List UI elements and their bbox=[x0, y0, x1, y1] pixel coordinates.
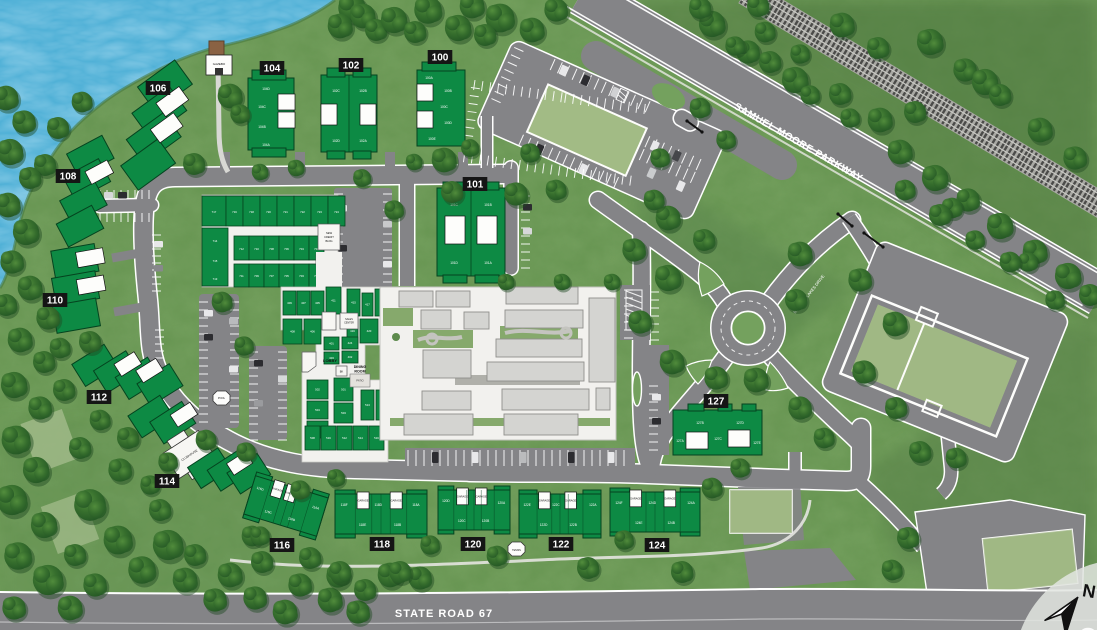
svg-text:723: 723 bbox=[317, 210, 322, 214]
svg-text:514: 514 bbox=[358, 436, 363, 440]
svg-text:124: 124 bbox=[649, 541, 666, 552]
svg-text:513: 513 bbox=[365, 403, 370, 407]
svg-text:127C: 127C bbox=[714, 437, 722, 441]
svg-text:DINING: DINING bbox=[354, 365, 367, 369]
svg-text:501: 501 bbox=[341, 388, 346, 392]
svg-text:714: 714 bbox=[213, 239, 218, 243]
svg-text:100: 100 bbox=[432, 53, 449, 64]
svg-text:411: 411 bbox=[331, 299, 336, 303]
svg-text:GARAGE: GARAGE bbox=[391, 499, 402, 503]
svg-text:118A: 118A bbox=[412, 503, 420, 507]
svg-text:BLDG: BLDG bbox=[325, 239, 332, 243]
svg-text:101B: 101B bbox=[484, 203, 491, 207]
svg-text:503: 503 bbox=[341, 411, 346, 415]
svg-text:TENNIS: TENNIS bbox=[512, 549, 521, 552]
svg-text:420: 420 bbox=[367, 329, 372, 333]
svg-text:104D: 104D bbox=[262, 87, 270, 91]
svg-text:122B: 122B bbox=[569, 523, 576, 527]
svg-text:GAZEBO: GAZEBO bbox=[213, 62, 226, 66]
svg-text:424: 424 bbox=[348, 341, 353, 345]
svg-text:100B: 100B bbox=[444, 89, 451, 93]
svg-text:721: 721 bbox=[283, 210, 288, 214]
svg-text:722: 722 bbox=[300, 210, 305, 214]
svg-text:127E: 127E bbox=[753, 441, 760, 445]
svg-text:127: 127 bbox=[708, 397, 725, 408]
svg-text:104: 104 bbox=[264, 64, 281, 75]
svg-text:127A: 127A bbox=[676, 439, 684, 443]
svg-text:120D: 120D bbox=[442, 499, 450, 503]
svg-text:118E: 118E bbox=[359, 523, 366, 527]
svg-text:516: 516 bbox=[374, 436, 379, 440]
svg-text:122A: 122A bbox=[589, 503, 597, 507]
svg-text:401: 401 bbox=[329, 342, 334, 346]
svg-text:POOL: POOL bbox=[218, 396, 226, 400]
svg-text:124E: 124E bbox=[635, 521, 642, 525]
svg-text:GARAGE: GARAGE bbox=[664, 497, 675, 501]
svg-text:124F: 124F bbox=[615, 501, 622, 505]
svg-text:GARAGE: GARAGE bbox=[630, 497, 641, 501]
svg-text:508: 508 bbox=[310, 436, 315, 440]
svg-text:122D: 122D bbox=[540, 523, 548, 527]
svg-text:LOBBY: LOBBY bbox=[323, 358, 337, 363]
svg-text:705: 705 bbox=[284, 274, 289, 278]
svg-text:122C: 122C bbox=[552, 503, 560, 507]
svg-text:GARAGE: GARAGE bbox=[539, 499, 550, 503]
svg-text:724: 724 bbox=[334, 210, 339, 214]
svg-text:GARAGE: GARAGE bbox=[358, 499, 369, 503]
svg-text:BK: BK bbox=[340, 370, 344, 374]
svg-text:406: 406 bbox=[310, 330, 315, 334]
svg-text:408: 408 bbox=[290, 330, 295, 334]
svg-text:118: 118 bbox=[374, 540, 391, 551]
svg-text:GARAGE: GARAGE bbox=[565, 499, 576, 503]
svg-text:100E: 100E bbox=[428, 137, 435, 141]
svg-text:512: 512 bbox=[342, 436, 347, 440]
svg-text:STATE ROAD 67: STATE ROAD 67 bbox=[395, 608, 493, 620]
svg-text:709: 709 bbox=[254, 274, 259, 278]
svg-text:127D: 127D bbox=[736, 421, 744, 425]
svg-text:502: 502 bbox=[315, 388, 320, 392]
svg-text:102A: 102A bbox=[359, 139, 367, 143]
svg-text:116: 116 bbox=[274, 541, 291, 552]
svg-text:415: 415 bbox=[351, 301, 356, 305]
svg-text:706: 706 bbox=[284, 247, 289, 251]
svg-text:504: 504 bbox=[315, 408, 320, 412]
svg-text:718: 718 bbox=[249, 210, 254, 214]
svg-text:409: 409 bbox=[287, 301, 292, 305]
svg-text:CREDIT: CREDIT bbox=[324, 235, 334, 239]
svg-text:712: 712 bbox=[239, 247, 244, 251]
svg-text:122E: 122E bbox=[523, 503, 530, 507]
svg-text:100C: 100C bbox=[440, 105, 448, 109]
svg-text:106: 106 bbox=[150, 84, 167, 95]
svg-text:711: 711 bbox=[239, 274, 244, 278]
svg-text:102D: 102D bbox=[332, 139, 340, 143]
svg-text:101A: 101A bbox=[484, 261, 492, 265]
svg-text:102: 102 bbox=[343, 61, 360, 72]
svg-text:114: 114 bbox=[159, 477, 176, 488]
svg-text:720: 720 bbox=[266, 210, 271, 214]
svg-text:101D: 101D bbox=[450, 261, 458, 265]
svg-text:124D: 124D bbox=[648, 501, 656, 505]
svg-text:ROOM: ROOM bbox=[354, 370, 365, 374]
svg-text:124B: 124B bbox=[667, 521, 674, 525]
svg-text:100D: 100D bbox=[444, 121, 452, 125]
svg-text:102C: 102C bbox=[332, 89, 340, 93]
svg-text:405: 405 bbox=[315, 301, 320, 305]
svg-text:101: 101 bbox=[467, 180, 484, 191]
svg-text:703: 703 bbox=[299, 274, 304, 278]
svg-text:704: 704 bbox=[299, 247, 304, 251]
svg-text:124A: 124A bbox=[687, 501, 695, 505]
svg-text:707: 707 bbox=[269, 274, 274, 278]
svg-text:120: 120 bbox=[465, 540, 482, 551]
svg-text:CENTER: CENTER bbox=[344, 322, 354, 325]
svg-text:713: 713 bbox=[213, 277, 218, 281]
svg-text:407: 407 bbox=[301, 301, 306, 305]
svg-text:PATIO: PATIO bbox=[356, 379, 363, 383]
svg-text:122: 122 bbox=[553, 540, 570, 551]
svg-text:715: 715 bbox=[213, 259, 218, 263]
svg-text:416: 416 bbox=[350, 329, 355, 333]
svg-text:110: 110 bbox=[47, 296, 64, 307]
svg-text:120C: 120C bbox=[458, 519, 466, 523]
svg-text:402: 402 bbox=[348, 355, 353, 359]
svg-text:104C: 104C bbox=[258, 105, 266, 109]
svg-text:118D: 118D bbox=[375, 503, 383, 507]
svg-text:NEW: NEW bbox=[326, 231, 333, 235]
svg-text:112: 112 bbox=[91, 393, 108, 404]
svg-text:717: 717 bbox=[212, 210, 217, 214]
svg-text:127B: 127B bbox=[696, 421, 703, 425]
svg-text:120A: 120A bbox=[498, 501, 506, 505]
svg-text:716: 716 bbox=[232, 210, 237, 214]
svg-text:710: 710 bbox=[254, 247, 259, 251]
svg-text:104A: 104A bbox=[262, 143, 270, 147]
svg-text:108: 108 bbox=[60, 172, 77, 183]
svg-text:516: 516 bbox=[326, 436, 331, 440]
svg-text:102B: 102B bbox=[359, 89, 366, 93]
svg-text:100A: 100A bbox=[425, 76, 433, 80]
svg-text:708: 708 bbox=[269, 247, 274, 251]
svg-text:120B: 120B bbox=[482, 519, 489, 523]
svg-text:417: 417 bbox=[365, 303, 370, 307]
svg-text:104B: 104B bbox=[258, 125, 265, 129]
svg-text:118B: 118B bbox=[394, 523, 401, 527]
svg-text:118F: 118F bbox=[341, 503, 348, 507]
